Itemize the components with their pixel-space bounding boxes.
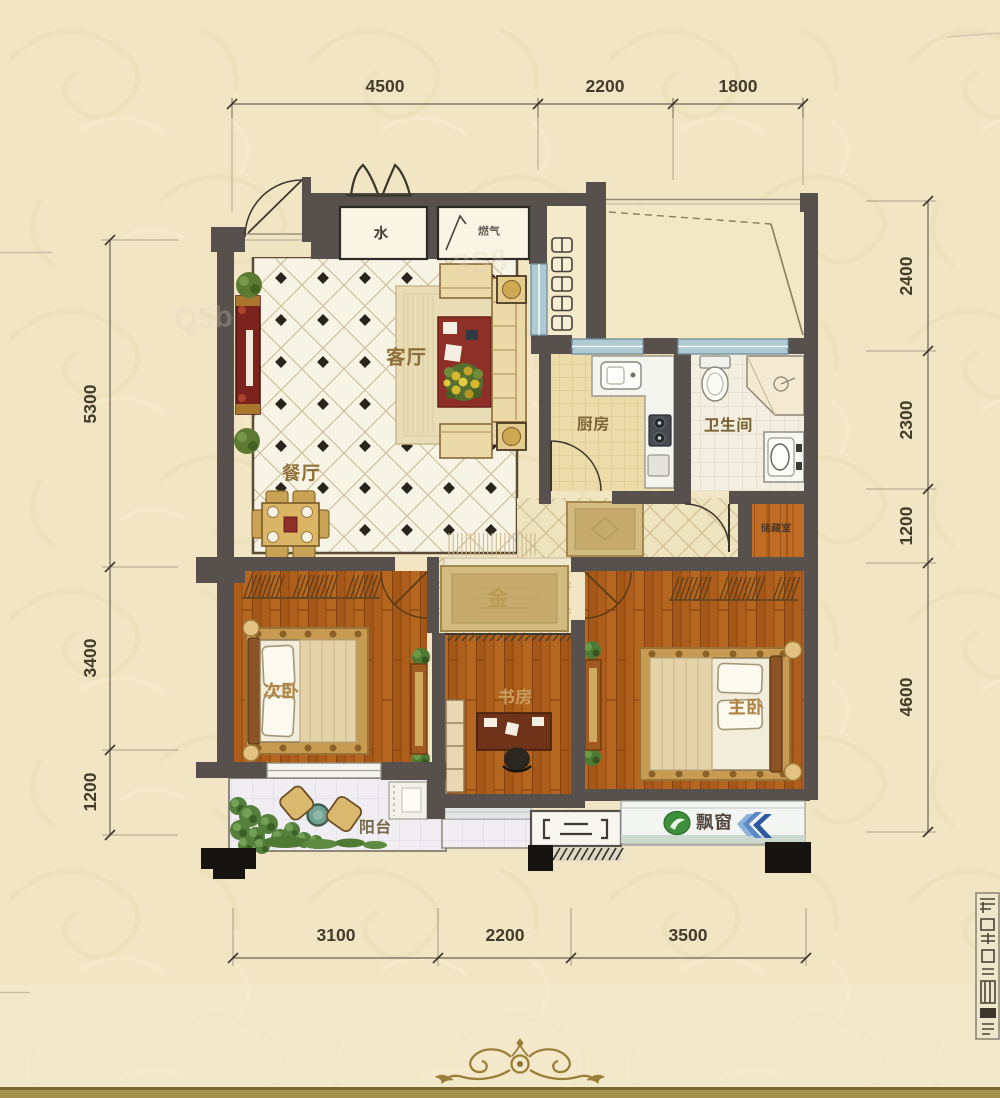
svg-text:1200: 1200: [896, 506, 916, 545]
svg-text:1800: 1800: [719, 76, 758, 96]
svg-text:4600: 4600: [896, 677, 916, 716]
svg-text:3100: 3100: [317, 925, 356, 945]
svg-text:3400: 3400: [80, 638, 100, 677]
svg-text:Q5b: Q5b: [173, 300, 234, 337]
svg-text:5300: 5300: [80, 384, 100, 423]
svg-text:2200: 2200: [586, 76, 625, 96]
svg-text:2300: 2300: [896, 400, 916, 439]
svg-text:2400: 2400: [896, 256, 916, 295]
svg-text:1200: 1200: [80, 772, 100, 811]
svg-text:2200: 2200: [486, 925, 525, 945]
svg-text:3500: 3500: [669, 925, 708, 945]
svg-text:3S8: 3S8: [452, 244, 509, 282]
svg-text:4500: 4500: [366, 76, 405, 96]
